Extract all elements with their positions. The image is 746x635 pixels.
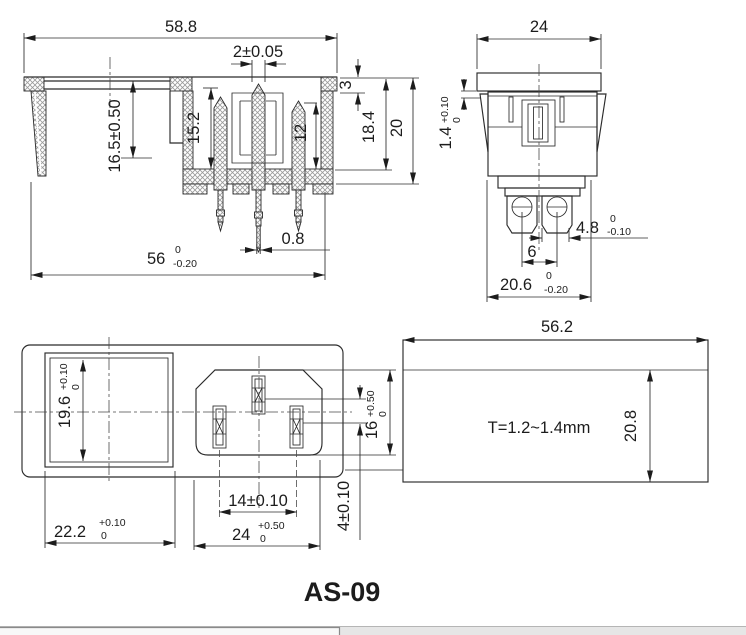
dim-depth-total: 20: [388, 119, 406, 137]
svg-text:20.8: 20.8: [622, 410, 640, 442]
ext-lines: [461, 91, 480, 98]
svg-text:0: 0: [451, 117, 463, 123]
inner-pin: [560, 97, 564, 122]
side-clips: [480, 94, 606, 152]
svg-text:16: 16: [363, 421, 381, 439]
svg-text:+0.10: +0.10: [58, 363, 70, 390]
end-view: 24 1.4 +0.10 0 4.8 0 -0.10 6 20.6 0 -0.2…: [437, 18, 648, 302]
cavity-right-wall: [321, 91, 333, 171]
svg-text:12: 12: [292, 124, 310, 142]
front-face-view: 19.6 +0.10 0 22.2 +0.10 0 14±0.10 24 +0.…: [14, 337, 403, 550]
dim-flange-width: 24: [530, 18, 548, 36]
dim-tolerance-upper: +0.50: [258, 520, 285, 532]
solder-terminals: [507, 196, 572, 233]
panel-cutout-view: 56.2 20.8 T=1.2~1.4mm: [403, 318, 708, 482]
technical-drawing-page: 58.8 2±0.05 3 18.4 20 15.2: [0, 0, 746, 635]
dim-height: 16.5±0.50: [106, 99, 124, 172]
svg-text:0: 0: [377, 411, 389, 417]
cutout-outline: [403, 340, 708, 482]
wall-foot: [313, 184, 333, 194]
dim-cutout-height: 20.8: [622, 410, 640, 442]
left-pin-section: [214, 97, 227, 231]
dim-pin-width: 2±0.05: [233, 43, 283, 61]
dim-depth-inner: 18.4: [360, 111, 378, 143]
svg-text:3: 3: [337, 80, 355, 89]
dim-tolerance-upper: 0: [175, 244, 181, 256]
mid-flange-block: [170, 77, 192, 91]
fuse-drawer-slot: [534, 107, 543, 139]
drawing-canvas: 58.8 2±0.05 3 18.4 20 15.2: [0, 0, 746, 635]
svg-text:19.6: 19.6: [56, 396, 74, 428]
dim-window-width: 22.2: [54, 523, 86, 541]
wall-foot: [233, 184, 249, 194]
svg-text:15.2: 15.2: [185, 112, 203, 144]
dim-pin-pitch: 14±0.10: [228, 492, 288, 510]
base-step: [498, 176, 585, 188]
dim-tolerance-upper: +0.10: [99, 517, 126, 529]
dim-body-width: 20.6: [500, 276, 532, 294]
footer-table-edge: [0, 626, 746, 635]
center-pin-section: [252, 84, 265, 252]
inner-pin: [509, 97, 513, 122]
svg-text:18.4: 18.4: [360, 111, 378, 143]
svg-text:4±0.10: 4±0.10: [335, 481, 353, 531]
ext-lines: [24, 33, 337, 73]
fuse-drawer-inner: [528, 104, 548, 142]
wall-foot: [183, 184, 207, 194]
dim-fuse-depth: 15.2: [185, 112, 203, 144]
dim-tolerance-lower: -0.20: [544, 284, 568, 296]
svg-text:20: 20: [388, 119, 406, 137]
earth-pin: [252, 376, 265, 414]
model-label: AS-09: [304, 577, 381, 607]
ext-lines: [542, 228, 569, 242]
right-pin-section: [292, 101, 305, 231]
dim-inlet-height: 16 +0.50 0: [363, 390, 389, 439]
panel-thickness-note: T=1.2~1.4mm: [488, 419, 591, 437]
dim-pin-depth: 12: [292, 124, 310, 142]
dim-tip-width: 0.8: [282, 230, 305, 248]
right-flange-block: [321, 77, 337, 91]
svg-text:+0.50: +0.50: [365, 390, 377, 417]
dim-tolerance-lower: -0.10: [607, 226, 631, 238]
dim-tolerance-lower: -0.20: [173, 258, 197, 270]
dim-overall-width: 58.8: [165, 18, 197, 36]
dim-row-offset: 4±0.10: [335, 481, 353, 531]
dim-bottom-width: 56: [147, 250, 165, 268]
left-flange-block: [24, 77, 44, 91]
ext-lines: [252, 60, 265, 82]
dim-tolerance-lower: 0: [260, 533, 266, 545]
svg-text:1.4: 1.4: [437, 127, 455, 150]
dim-cutout-width: 56.2: [541, 318, 573, 336]
dim-terminal-width: 4.8: [576, 219, 599, 237]
dim-terminal-pitch: 6: [527, 243, 536, 261]
base-step-2: [505, 188, 580, 196]
svg-text:+0.10: +0.10: [439, 96, 451, 123]
dim-flange-step: 3: [337, 80, 355, 89]
side-section-view: 58.8 2±0.05 3 18.4 20 15.2: [24, 18, 419, 280]
dim-tolerance-upper: 0: [546, 270, 552, 282]
dim-inlet-width: 24: [232, 526, 250, 544]
wall-foot: [273, 184, 289, 194]
dim-window-height: 19.6 +0.10 0: [56, 363, 82, 428]
dim-tolerance-lower: 0: [101, 530, 107, 542]
svg-text:0: 0: [70, 384, 82, 390]
footer-bar-left: [0, 627, 340, 635]
svg-text:16.5±0.50: 16.5±0.50: [106, 99, 124, 172]
dim-tolerance-upper: 0: [610, 213, 616, 225]
dim-lip-thickness: 1.4 +0.10 0: [437, 96, 463, 149]
